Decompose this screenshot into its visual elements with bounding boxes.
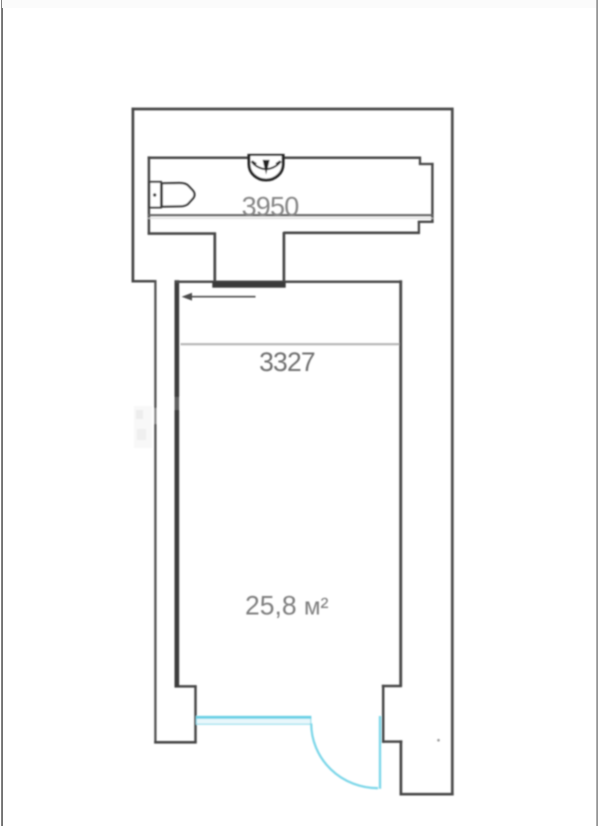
- svg-text:25,8 м²: 25,8 м²: [245, 591, 328, 621]
- svg-text:3327: 3327: [259, 347, 315, 377]
- svg-text:3950: 3950: [242, 192, 299, 222]
